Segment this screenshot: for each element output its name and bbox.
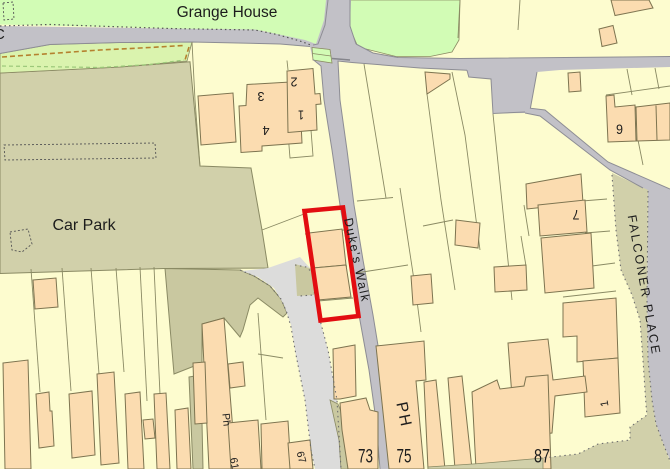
svg-text:4: 4 — [263, 123, 270, 138]
svg-text:Car Park: Car Park — [52, 217, 116, 234]
svg-text:7: 7 — [572, 207, 579, 223]
svg-text:9: 9 — [616, 121, 623, 137]
svg-text:Grange House: Grange House — [177, 4, 278, 21]
svg-text:75: 75 — [397, 447, 412, 468]
svg-text:87: 87 — [534, 447, 550, 468]
svg-text:C: C — [0, 26, 5, 43]
svg-text:2: 2 — [291, 75, 298, 90]
svg-text:1: 1 — [298, 108, 304, 123]
svg-text:61: 61 — [227, 457, 241, 469]
svg-text:3: 3 — [258, 89, 265, 104]
svg-text:73: 73 — [358, 447, 373, 468]
svg-text:Ph: Ph — [219, 413, 232, 427]
